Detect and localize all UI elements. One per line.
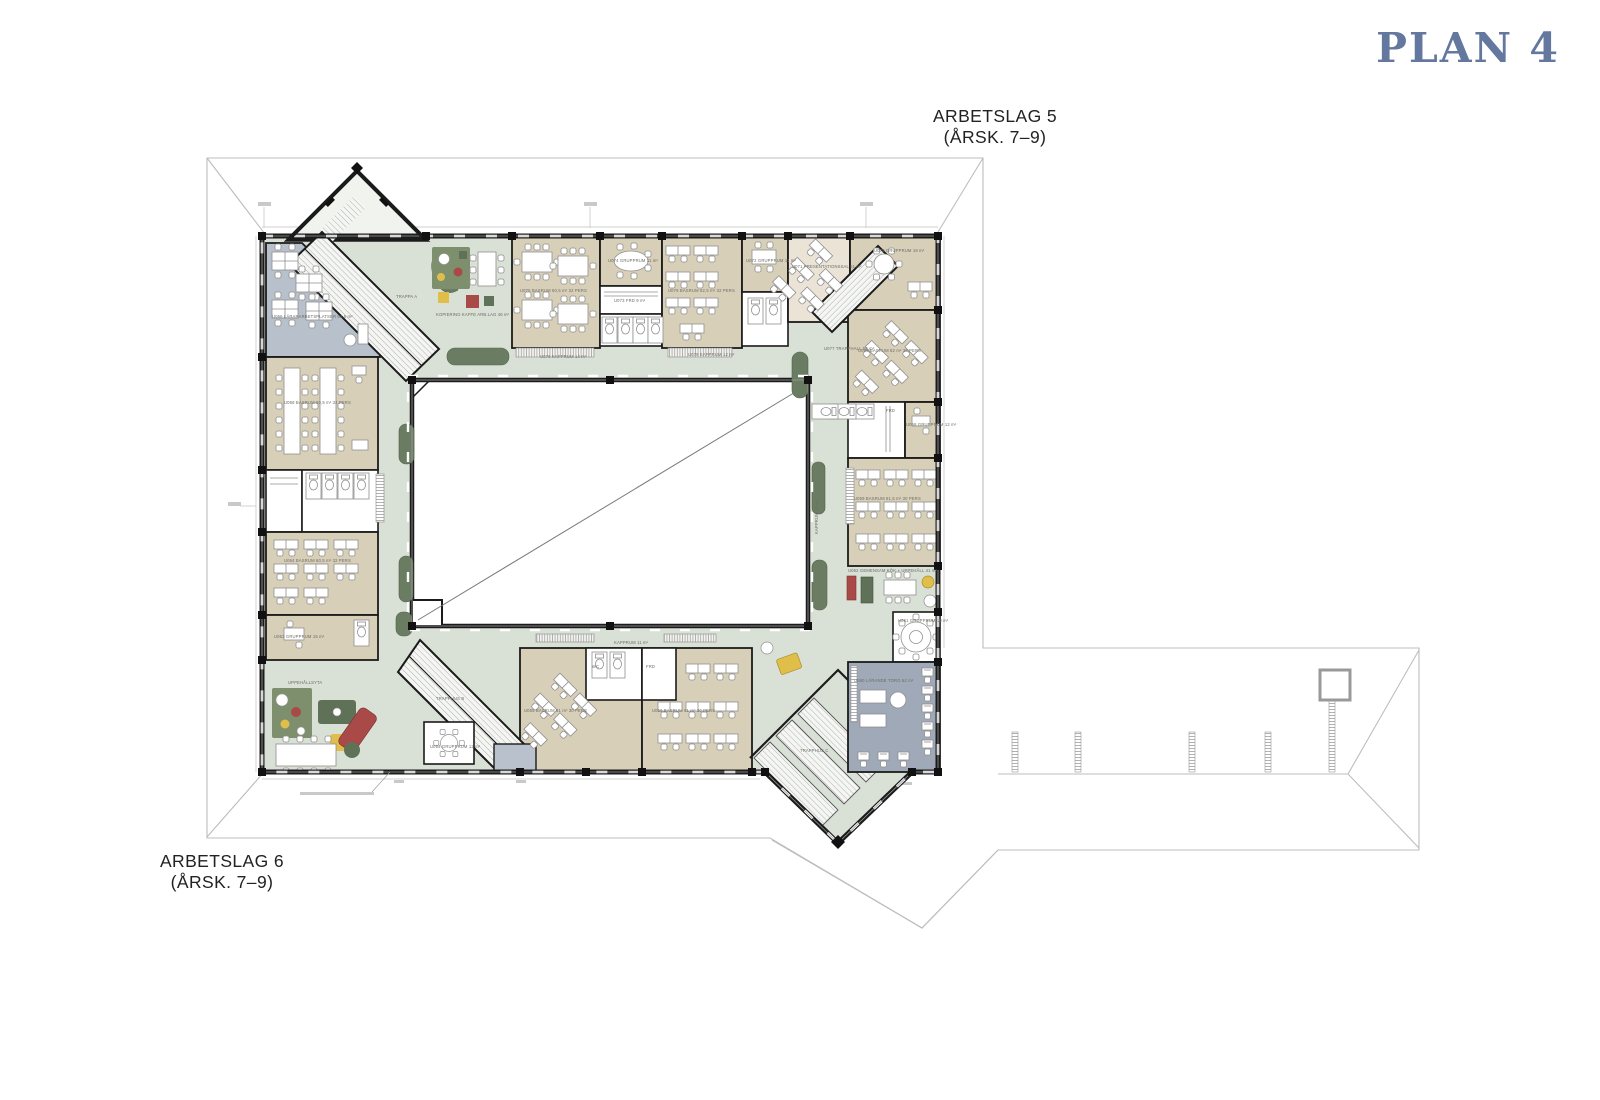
room-label: U072 GRUPPRUM 11 m² — [746, 258, 796, 263]
room-label: U070 GRUPPRUM 18 m² — [874, 248, 925, 253]
room-label: U055 BASRUM 61 m² 30 PERS — [524, 708, 587, 713]
room-label: UPPEHÅLLSYTA — [288, 680, 322, 685]
lounge-north — [432, 247, 504, 308]
room-label: U058 GRUPPRUM 12 m² — [906, 422, 957, 427]
workgroup-top-grades: (ÅRSK. 7–9) — [944, 127, 1047, 147]
room-label: U062 GEMENSAM KÖK + UPPEHÅLL 41 m² — [848, 568, 938, 573]
room-label: U078 KAPPRUM 14 m² — [540, 354, 587, 359]
room-label: U063 GRUPPRUM 15 m² — [274, 634, 325, 639]
room-label: U071 PRESENTATIONSSAL 51 m² — [792, 264, 862, 269]
workgroup-label-bottom: ARBETSLAG 6 (ÅRSK. 7–9) — [160, 851, 284, 892]
room-frd-s2 — [642, 648, 676, 700]
page-title: PLAN 4 — [1376, 24, 1560, 72]
room-label: U068 BASRUM 60,5 m² 32 PERS — [284, 400, 351, 405]
room-label: U075 BASRUM 60,5 m² 32 PERS — [520, 288, 587, 293]
room-label: U077 TRAPPHALL 58 m² — [824, 346, 875, 351]
roof-ladder — [1012, 678, 1335, 772]
room-label: KAPPRUM 12 m² — [814, 499, 819, 534]
floor-plan-drawing: U066 LÄRARARBETSPLATSER 51,5 m²U068 BASR… — [0, 0, 1600, 1100]
room-label: TRAPPHUS B — [436, 696, 464, 701]
room-label: U059 BASRUM 61,5 m² 30 PERS — [854, 496, 921, 501]
workgroup-top-name: ARBETSLAG 5 — [933, 106, 1057, 126]
roof-skylight — [1320, 670, 1350, 700]
room-label: U054 GRUPPRUM 12 m² — [430, 744, 481, 749]
room-label: U056 BASRUM 61 m² 30 PERS — [652, 708, 715, 713]
room-label: U060 LÄRANDE TORG 62 m² — [854, 678, 914, 683]
room-label: TRAPPA A — [396, 294, 417, 299]
room-frd-w — [266, 470, 302, 532]
room-label: WC — [592, 664, 599, 669]
room-label: TRAPPHUS C — [800, 748, 829, 753]
room-label: FRD — [646, 664, 655, 669]
room-label: U066 LÄRARARBETSPLATSER 51,5 m² — [272, 314, 353, 319]
workgroup-bottom-grades: (ÅRSK. 7–9) — [171, 872, 274, 892]
room-label: U073 FRD 9 m² — [614, 298, 646, 303]
courtyard — [412, 380, 808, 626]
workgroup-label-top: ARBETSLAG 5 (ÅRSK. 7–9) — [933, 106, 1057, 147]
room-label: U079 KAPPRUM 12 m² — [688, 352, 735, 357]
room-label: U076 BASRUM 62,5 m² 32 PERS — [668, 288, 735, 293]
workgroup-bottom-name: ARBETSLAG 6 — [160, 851, 284, 871]
room-label: U074 GRUPPRUM 11 m² — [608, 258, 658, 263]
room-label: FRD — [886, 408, 895, 413]
room-label: KOPIERING KAFFE ARB.LAG 46 m² — [436, 312, 510, 317]
room-label: U064 BASRUM 60,5 m² 32 PERS — [284, 558, 351, 563]
floor-plan-page: U066 LÄRARARBETSPLATSER 51,5 m²U068 BASR… — [0, 0, 1600, 1100]
room-grupprum-e — [905, 402, 940, 458]
room-label: U061 GRUPPRUM 19 m² — [898, 618, 949, 623]
stair-sw-landing — [494, 744, 536, 772]
room-label: KAPPRUM 11 m² — [614, 640, 649, 645]
